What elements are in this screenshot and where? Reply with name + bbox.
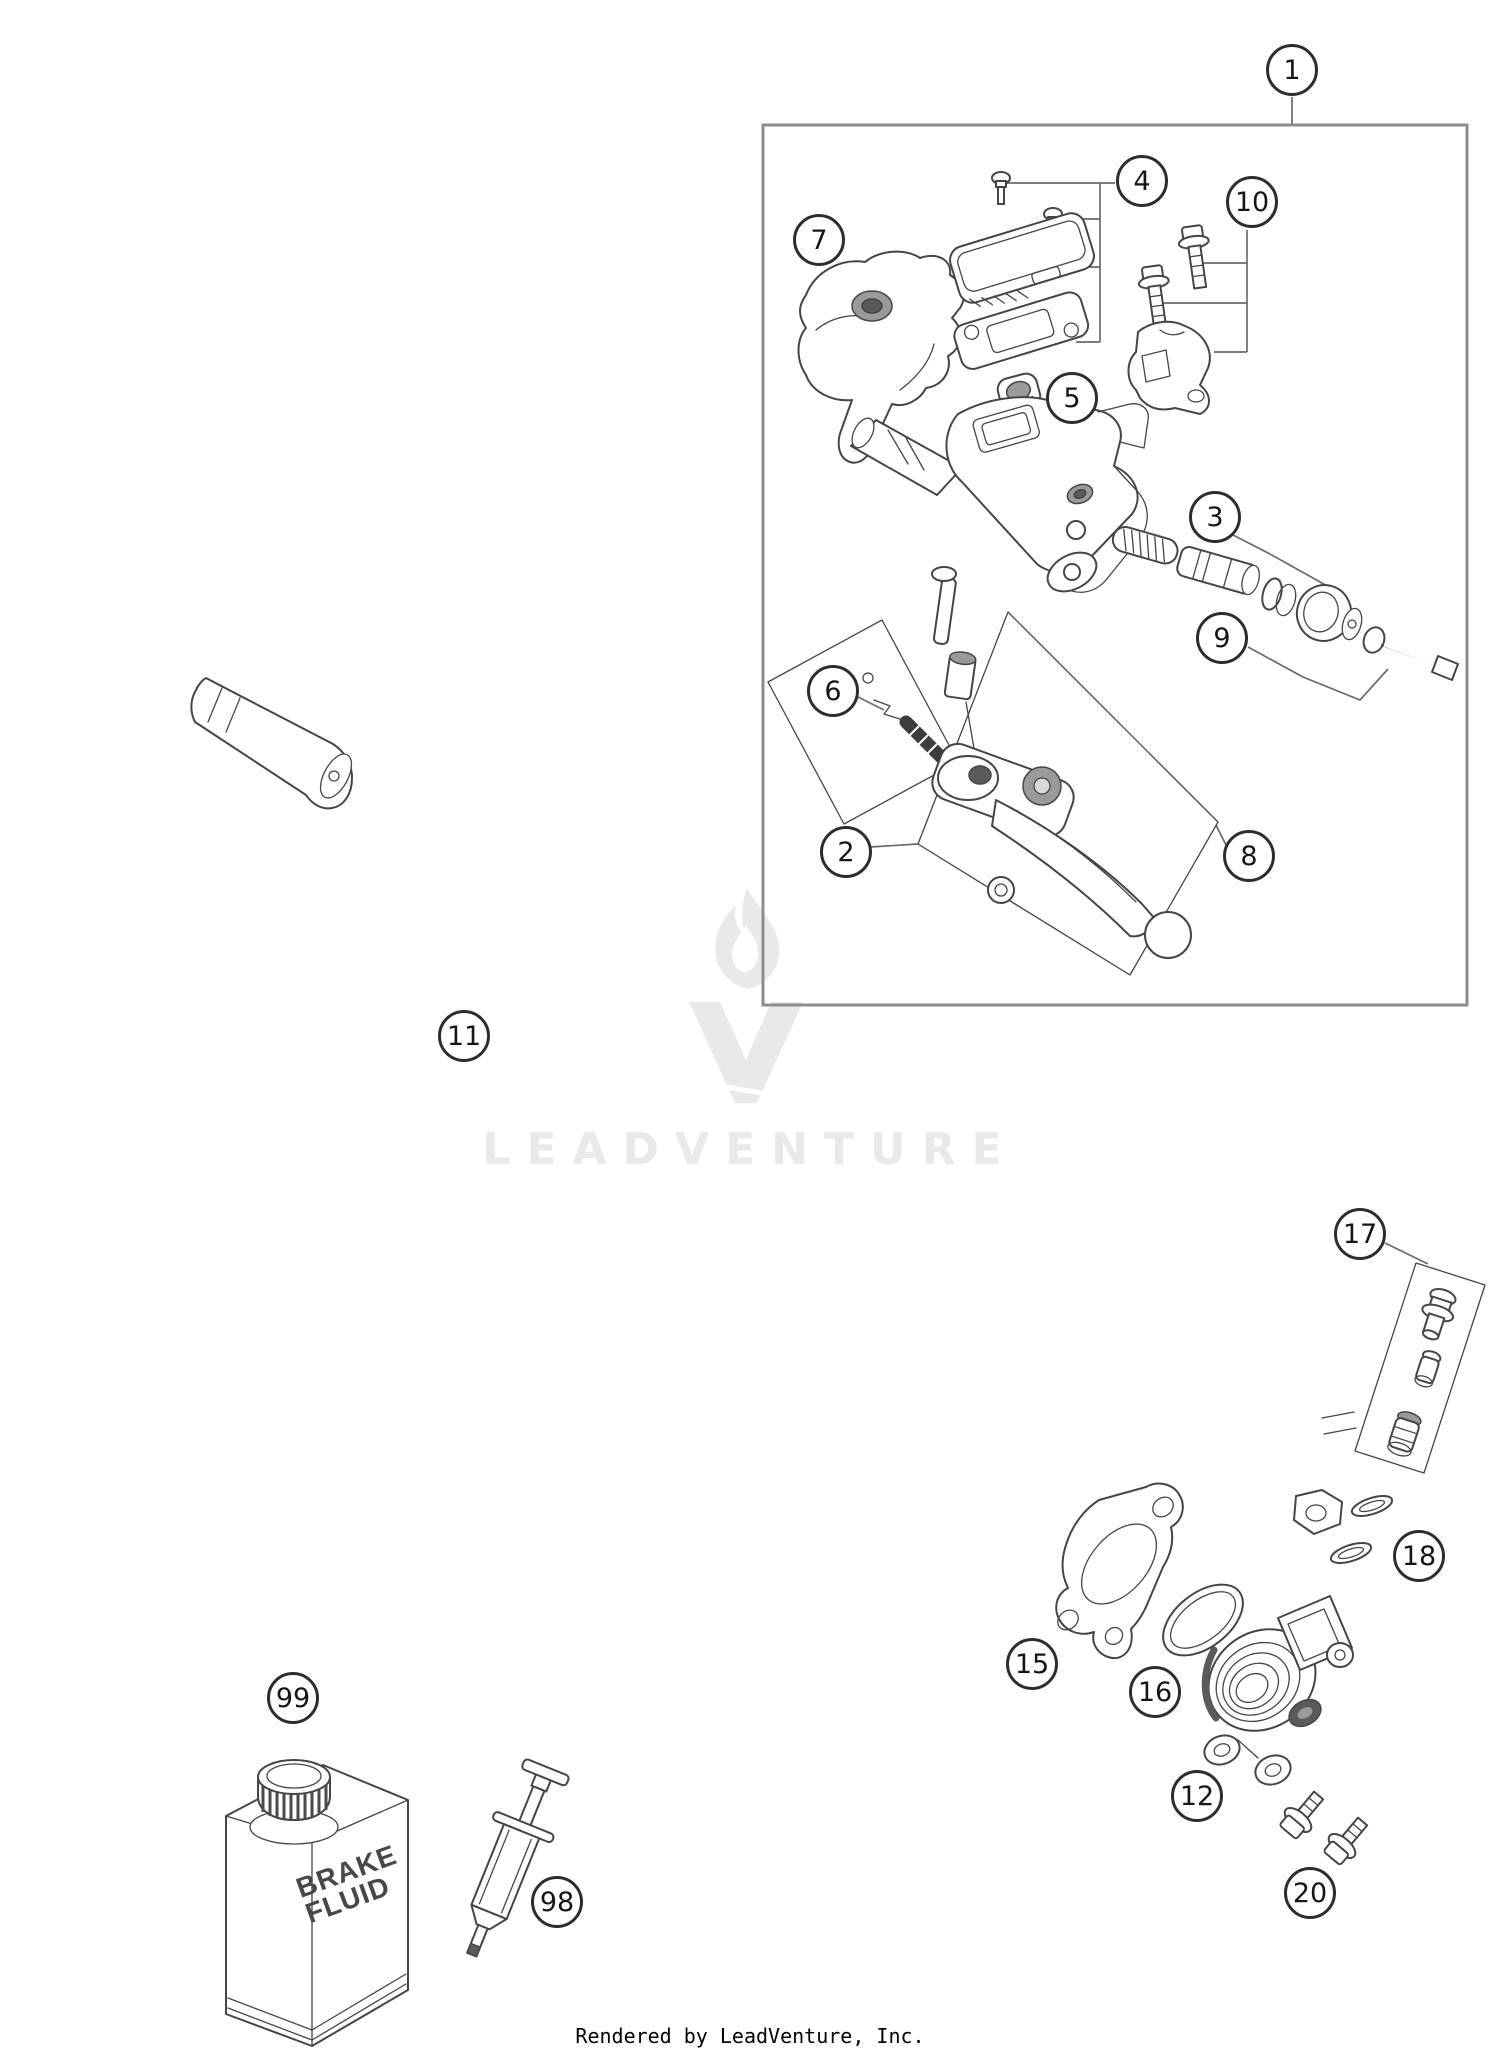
clutch-hose: [25, 676, 1356, 1534]
clutch-lever: [927, 739, 1191, 958]
handlebar-clamp: [1129, 322, 1210, 414]
leadventure-flame-logo: [689, 888, 803, 1103]
callout-6[interactable]: 6: [807, 665, 859, 717]
callout-16[interactable]: 16: [1129, 1666, 1181, 1718]
lever-spring-kit: [863, 673, 944, 760]
callout-9[interactable]: 9: [1196, 612, 1248, 664]
parts-diagram-page: LEADVENTURE: [0, 0, 1500, 2061]
piston-spring: [1110, 524, 1180, 566]
leadventure-watermark-text: LEADVENTURE: [482, 1124, 1017, 1175]
clamp-bolts: [1137, 224, 1215, 330]
callout-1[interactable]: 1: [1266, 44, 1318, 96]
rendered-by-footer: Rendered by LeadVenture, Inc.: [575, 2024, 924, 2048]
callout-4[interactable]: 4: [1116, 155, 1168, 207]
callout-8[interactable]: 8: [1223, 830, 1275, 882]
piston: [1175, 545, 1262, 596]
bleeder-valve-kit: [1355, 1263, 1485, 1473]
callout-7[interactable]: 7: [793, 214, 845, 266]
piston-circlip-washer: [1259, 576, 1299, 618]
callout-5[interactable]: 5: [1046, 372, 1098, 424]
callout-10[interactable]: 10: [1226, 176, 1278, 228]
exploded-parts-drawing: [0, 0, 1500, 2061]
bleed-syringe: [442, 1755, 577, 1966]
callout-17[interactable]: 17: [1334, 1208, 1386, 1260]
callout-3[interactable]: 3: [1189, 491, 1241, 543]
callout-15[interactable]: 15: [1006, 1638, 1058, 1690]
slave-mount-bolts: [1275, 1785, 1374, 1868]
callout-98[interactable]: 98: [531, 1876, 583, 1928]
callout-2[interactable]: 2: [820, 826, 872, 878]
callout-20[interactable]: 20: [1284, 1867, 1336, 1919]
piston-boot: [1290, 579, 1365, 648]
callout-18[interactable]: 18: [1393, 1530, 1445, 1582]
pushrod: [1360, 624, 1458, 680]
callout-12[interactable]: 12: [1171, 1770, 1223, 1822]
assembly-box: [763, 97, 1467, 1005]
callout-11[interactable]: 11: [438, 1010, 490, 1062]
master-cylinder-body: [848, 397, 1149, 599]
lever-pivot-pin: [932, 567, 976, 760]
callout-99[interactable]: 99: [267, 1672, 319, 1724]
